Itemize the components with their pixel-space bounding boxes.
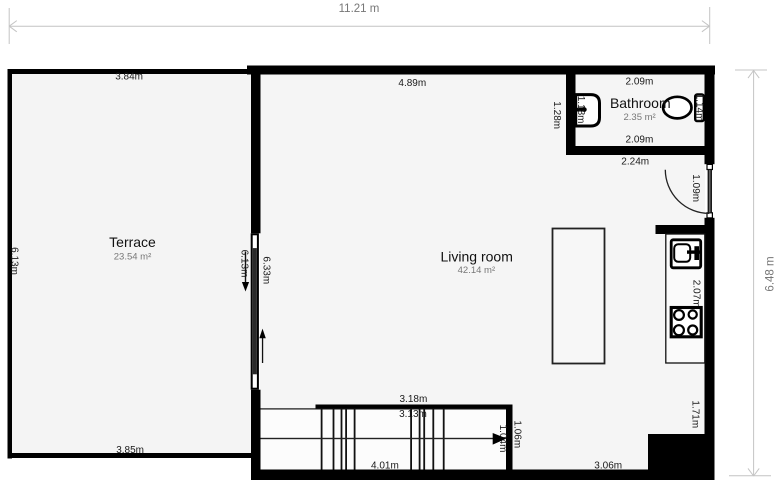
svg-text:3.85m: 3.85m (116, 445, 144, 456)
svg-text:3.18m: 3.18m (400, 394, 428, 405)
svg-text:3.06m: 3.06m (594, 460, 622, 471)
svg-text:3.84m: 3.84m (115, 72, 143, 83)
svg-text:1.09m: 1.09m (690, 174, 701, 202)
svg-text:2.07m: 2.07m (691, 280, 702, 308)
svg-text:42.14 m²: 42.14 m² (458, 265, 496, 276)
svg-text:2.24m: 2.24m (621, 157, 649, 168)
svg-text:6.33m: 6.33m (260, 256, 271, 284)
svg-text:1.14m: 1.14m (694, 94, 705, 122)
svg-text:23.54 m²: 23.54 m² (114, 252, 152, 263)
svg-text:6.13m: 6.13m (9, 247, 20, 275)
svg-text:2.35 m²: 2.35 m² (623, 112, 655, 123)
svg-text:1.71m: 1.71m (690, 400, 701, 428)
svg-text:Terrace: Terrace (109, 234, 156, 250)
svg-text:2.09m: 2.09m (626, 135, 654, 146)
svg-text:11.21 m: 11.21 m (339, 3, 380, 15)
svg-text:6.48 m: 6.48 m (764, 256, 776, 291)
svg-text:4.89m: 4.89m (398, 78, 426, 89)
svg-text:3.13m: 3.13m (399, 409, 427, 420)
svg-text:4.01m: 4.01m (371, 460, 399, 471)
svg-text:Bathroom: Bathroom (610, 95, 671, 111)
svg-text:Living room: Living room (441, 248, 513, 264)
svg-text:2.09m: 2.09m (626, 76, 654, 87)
svg-text:6.13m: 6.13m (239, 250, 250, 278)
svg-text:1.06m: 1.06m (512, 420, 523, 448)
svg-text:1.18m: 1.18m (575, 96, 586, 124)
svg-text:1.28m: 1.28m (551, 101, 562, 129)
